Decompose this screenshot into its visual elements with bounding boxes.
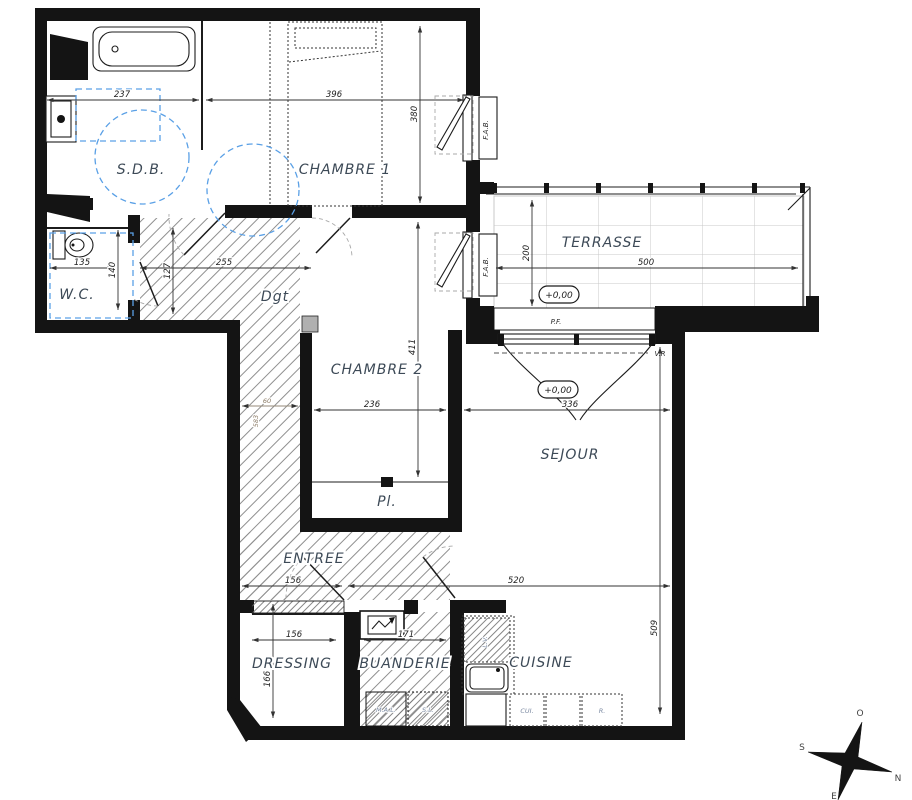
window-fab-2: F.A.B.: [435, 232, 497, 298]
cooker-label: CUI.: [520, 707, 533, 715]
dim-chambre1-width: 396: [326, 90, 343, 100]
compass-west: O: [856, 709, 863, 719]
label-placard: Pl.: [377, 494, 397, 510]
fridge-label: R.: [599, 707, 606, 715]
terrasse-level-text: +0,00: [545, 291, 573, 301]
dim-hall-width: 255: [216, 258, 232, 268]
kitchen-appliance-row: CUI. R.: [466, 694, 622, 726]
wall-sejour-top-right: [655, 330, 685, 344]
wall-ch2-right: [448, 330, 462, 532]
duct-mid-left: [47, 194, 90, 222]
wall-sejour-right: [672, 330, 685, 740]
wall-sejour-top-left: [466, 330, 500, 344]
placard-post: [381, 477, 393, 487]
wall-dressing-left: [227, 600, 240, 700]
duct-top-left: [50, 34, 88, 80]
bed-icon: [270, 22, 382, 206]
duct-corridor: [302, 316, 318, 332]
label-terrasse: TERRASSE: [562, 235, 643, 251]
label-buanderie: BUANDERIE: [359, 656, 450, 672]
label-chambre2: CHAMBRE 2: [331, 362, 424, 378]
terrasse-door-sill: [494, 308, 655, 330]
dim-chambre2-depth: 411: [408, 339, 418, 355]
dishwasher-label: L.V.: [481, 636, 489, 647]
dim-wc-width: 135: [74, 258, 90, 268]
hatched-floor-zones: [140, 218, 450, 726]
wall-right-upper-a: [466, 8, 480, 96]
compass-north: N: [895, 774, 902, 784]
label-cuisine: CUISINE: [509, 655, 573, 671]
dim-dressing-depth: 166: [263, 670, 273, 687]
bathroom-sink-icon: [46, 96, 76, 142]
wall-ch1-bottom-a: [225, 205, 312, 218]
wall-terrasse-left-stub: [478, 182, 494, 194]
compass-east: E: [831, 792, 837, 800]
entree-floor-hatch: [240, 532, 450, 600]
wall-terrasse-bottom-right: [655, 306, 819, 332]
dim-dressing-width: 156: [286, 630, 303, 640]
dim-sdb-width: 237: [114, 90, 131, 100]
dim-sejour-width: 336: [562, 400, 579, 410]
label-degagement: Dgt: [261, 289, 289, 305]
compass-star: [808, 722, 892, 800]
wall-ch2-left: [300, 333, 312, 532]
dim-sejour-depth: 509: [650, 620, 660, 636]
entry-door-threshold: [252, 601, 344, 613]
label-wc: W.C.: [59, 287, 94, 303]
window-fab-1: F.A.B.: [435, 95, 497, 161]
floor-plan-drawing: P.F. +0,00: [0, 0, 912, 800]
wall-cuisine-top: [450, 600, 506, 613]
wall-buanderie-left: [344, 612, 360, 726]
wall-placard-bottom: [300, 518, 462, 532]
wall-terrasse-right-edge: [806, 296, 819, 332]
door-leaf-right: [580, 344, 652, 420]
dim-terrasse-depth: 200: [522, 245, 532, 261]
wall-ch1-bottom-b: [352, 205, 466, 218]
dim-niche-depth: 583: [252, 415, 260, 427]
wall-right-upper-b: [466, 160, 480, 232]
label-dressing: DRESSING: [252, 656, 332, 672]
entry-door: [252, 601, 344, 614]
wall-wc-right-top: [128, 215, 140, 243]
label-sdb: S.D.B.: [117, 162, 166, 178]
french-door-label: P.F.: [551, 318, 562, 326]
wall-corridor-left: [227, 333, 240, 600]
dim-terrasse-width: 500: [638, 258, 654, 268]
toilet-icon: [53, 231, 93, 259]
wall-ch2-top-stub: [300, 205, 312, 218]
sejour-level-text: +0,00: [544, 386, 572, 396]
dim-buanderie-width: 171: [398, 630, 414, 640]
wall-left: [35, 8, 47, 333]
wall-top: [35, 8, 480, 21]
window-label: F.A.B.: [482, 120, 490, 140]
kitchen-sink-icon: [466, 664, 508, 692]
bathtub-icon: [93, 27, 195, 71]
washing-machine-label: M.A.L.: [376, 706, 396, 714]
kitchen-counter: L.V.: [462, 616, 514, 694]
dim-wc-depth: 140: [108, 262, 118, 278]
dim-sejour-total-width: 520: [508, 576, 524, 586]
wall-buanderie-top-stub: [404, 600, 418, 614]
label-chambre1: CHAMBRE 1: [299, 162, 392, 178]
compass-south: S: [799, 743, 805, 753]
dim-chambre2-width: 236: [364, 400, 381, 410]
floor-plan-page: P.F. +0,00: [0, 0, 912, 800]
wall-wc-right-bottom: [128, 300, 140, 322]
dryer-label: S.L.: [422, 706, 434, 714]
label-entree: ENTREE: [283, 551, 344, 567]
window-label: F.A.B.: [482, 257, 490, 277]
wall-right-upper-c: [466, 298, 480, 332]
dim-niche-width: 60: [263, 397, 271, 405]
wall-terrasse-left-end: [480, 306, 494, 332]
compass-rose: O S N E: [799, 709, 901, 800]
turning-circle-sdb: [95, 110, 189, 204]
wall-bottom: [246, 726, 685, 740]
label-sejour: SEJOUR: [541, 447, 600, 463]
dim-entree-width: 156: [285, 576, 302, 586]
dim-hall-depth: 127: [163, 262, 173, 279]
dim-chambre1-depth: 380: [410, 106, 420, 122]
sejour-french-door: V.R +0,00: [494, 334, 666, 420]
